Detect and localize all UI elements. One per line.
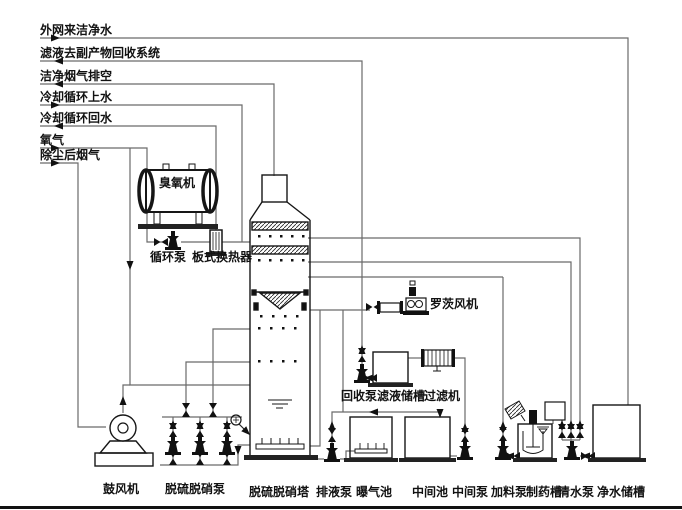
page-bottom-border [0,506,682,509]
desulf-pump-3 [219,436,235,455]
label-circulation-pump: 循环泵 [150,251,186,264]
label-tower: 脱硫脱硝塔 [249,486,309,499]
roots-blower-shape [377,281,429,315]
desulf-pump-2 [192,436,208,455]
label-feed-pump: 加料泵 [491,486,527,499]
recovery-pump-shape [354,364,370,383]
tower-sparger [256,438,304,449]
demister-band-1 [252,222,308,230]
stream-label-clean-water-in: 外网来洁净水 [40,24,112,37]
aeration-tank-shape [344,417,398,462]
feed-pump-shape [495,441,511,460]
stream-label-filtrate-out: 滤液去副产物回收系统 [40,47,160,60]
label-drain-pump: 排液泵 [316,486,352,499]
label-ozone-machine: 臭氧机 [159,177,195,190]
packing-section [252,290,308,310]
tower-shape [231,175,318,460]
label-clean-tank: 净水储槽 [597,486,645,499]
liquid-level-mark [268,400,292,408]
label-mid-pump: 中间泵 [452,486,488,499]
process-flow-diagram: 外网来洁净水 滤液去副产物回收系统 洁净烟气排空 冷却循环上水 冷却循环回水 氧… [0,0,682,510]
desulf-pump-1 [165,436,181,455]
drain-pump-shape [324,443,340,462]
label-blower: 鼓风机 [103,483,139,496]
clean-pump-shape [564,441,580,460]
label-heat-exchanger: 板式换热器 [192,251,252,264]
label-med-tank: 制药槽 [526,486,562,499]
ozone-machine-shape [138,164,218,229]
mid-pool-shape [399,417,456,462]
stream-label-flue-gas-in: 除尘后烟气 [40,149,100,162]
clean-tank-shape [588,405,646,462]
label-clean-pump: 清水泵 [558,486,594,499]
label-filtrate-tank: 滤液储槽 [377,390,425,403]
blower-shape [95,415,153,466]
tanks [344,349,646,462]
label-recovery-pump: 回收泵 [341,390,377,403]
stream-label-cooling-supply: 冷却循环上水 [40,91,112,104]
label-filter: 过滤机 [424,390,460,403]
stream-label-cooling-return: 冷却循环回水 [40,112,112,125]
pipe-network [40,38,628,465]
filter-shape [421,349,455,371]
mid-pump-shape [457,441,473,460]
filtrate-tank-shape [368,352,413,387]
label-aeration-tank: 曝气池 [356,486,392,499]
label-desulf-pumps: 脱硫脱硝泵 [165,483,225,496]
label-mid-pool: 中间池 [412,486,448,499]
head-box [545,402,565,420]
stream-label-oxygen: 氧气 [40,134,64,147]
demister-band-2 [252,246,308,254]
label-roots-blower: 罗茨风机 [430,298,478,311]
stream-label-clean-gas-vent: 洁净烟气排空 [40,70,112,83]
